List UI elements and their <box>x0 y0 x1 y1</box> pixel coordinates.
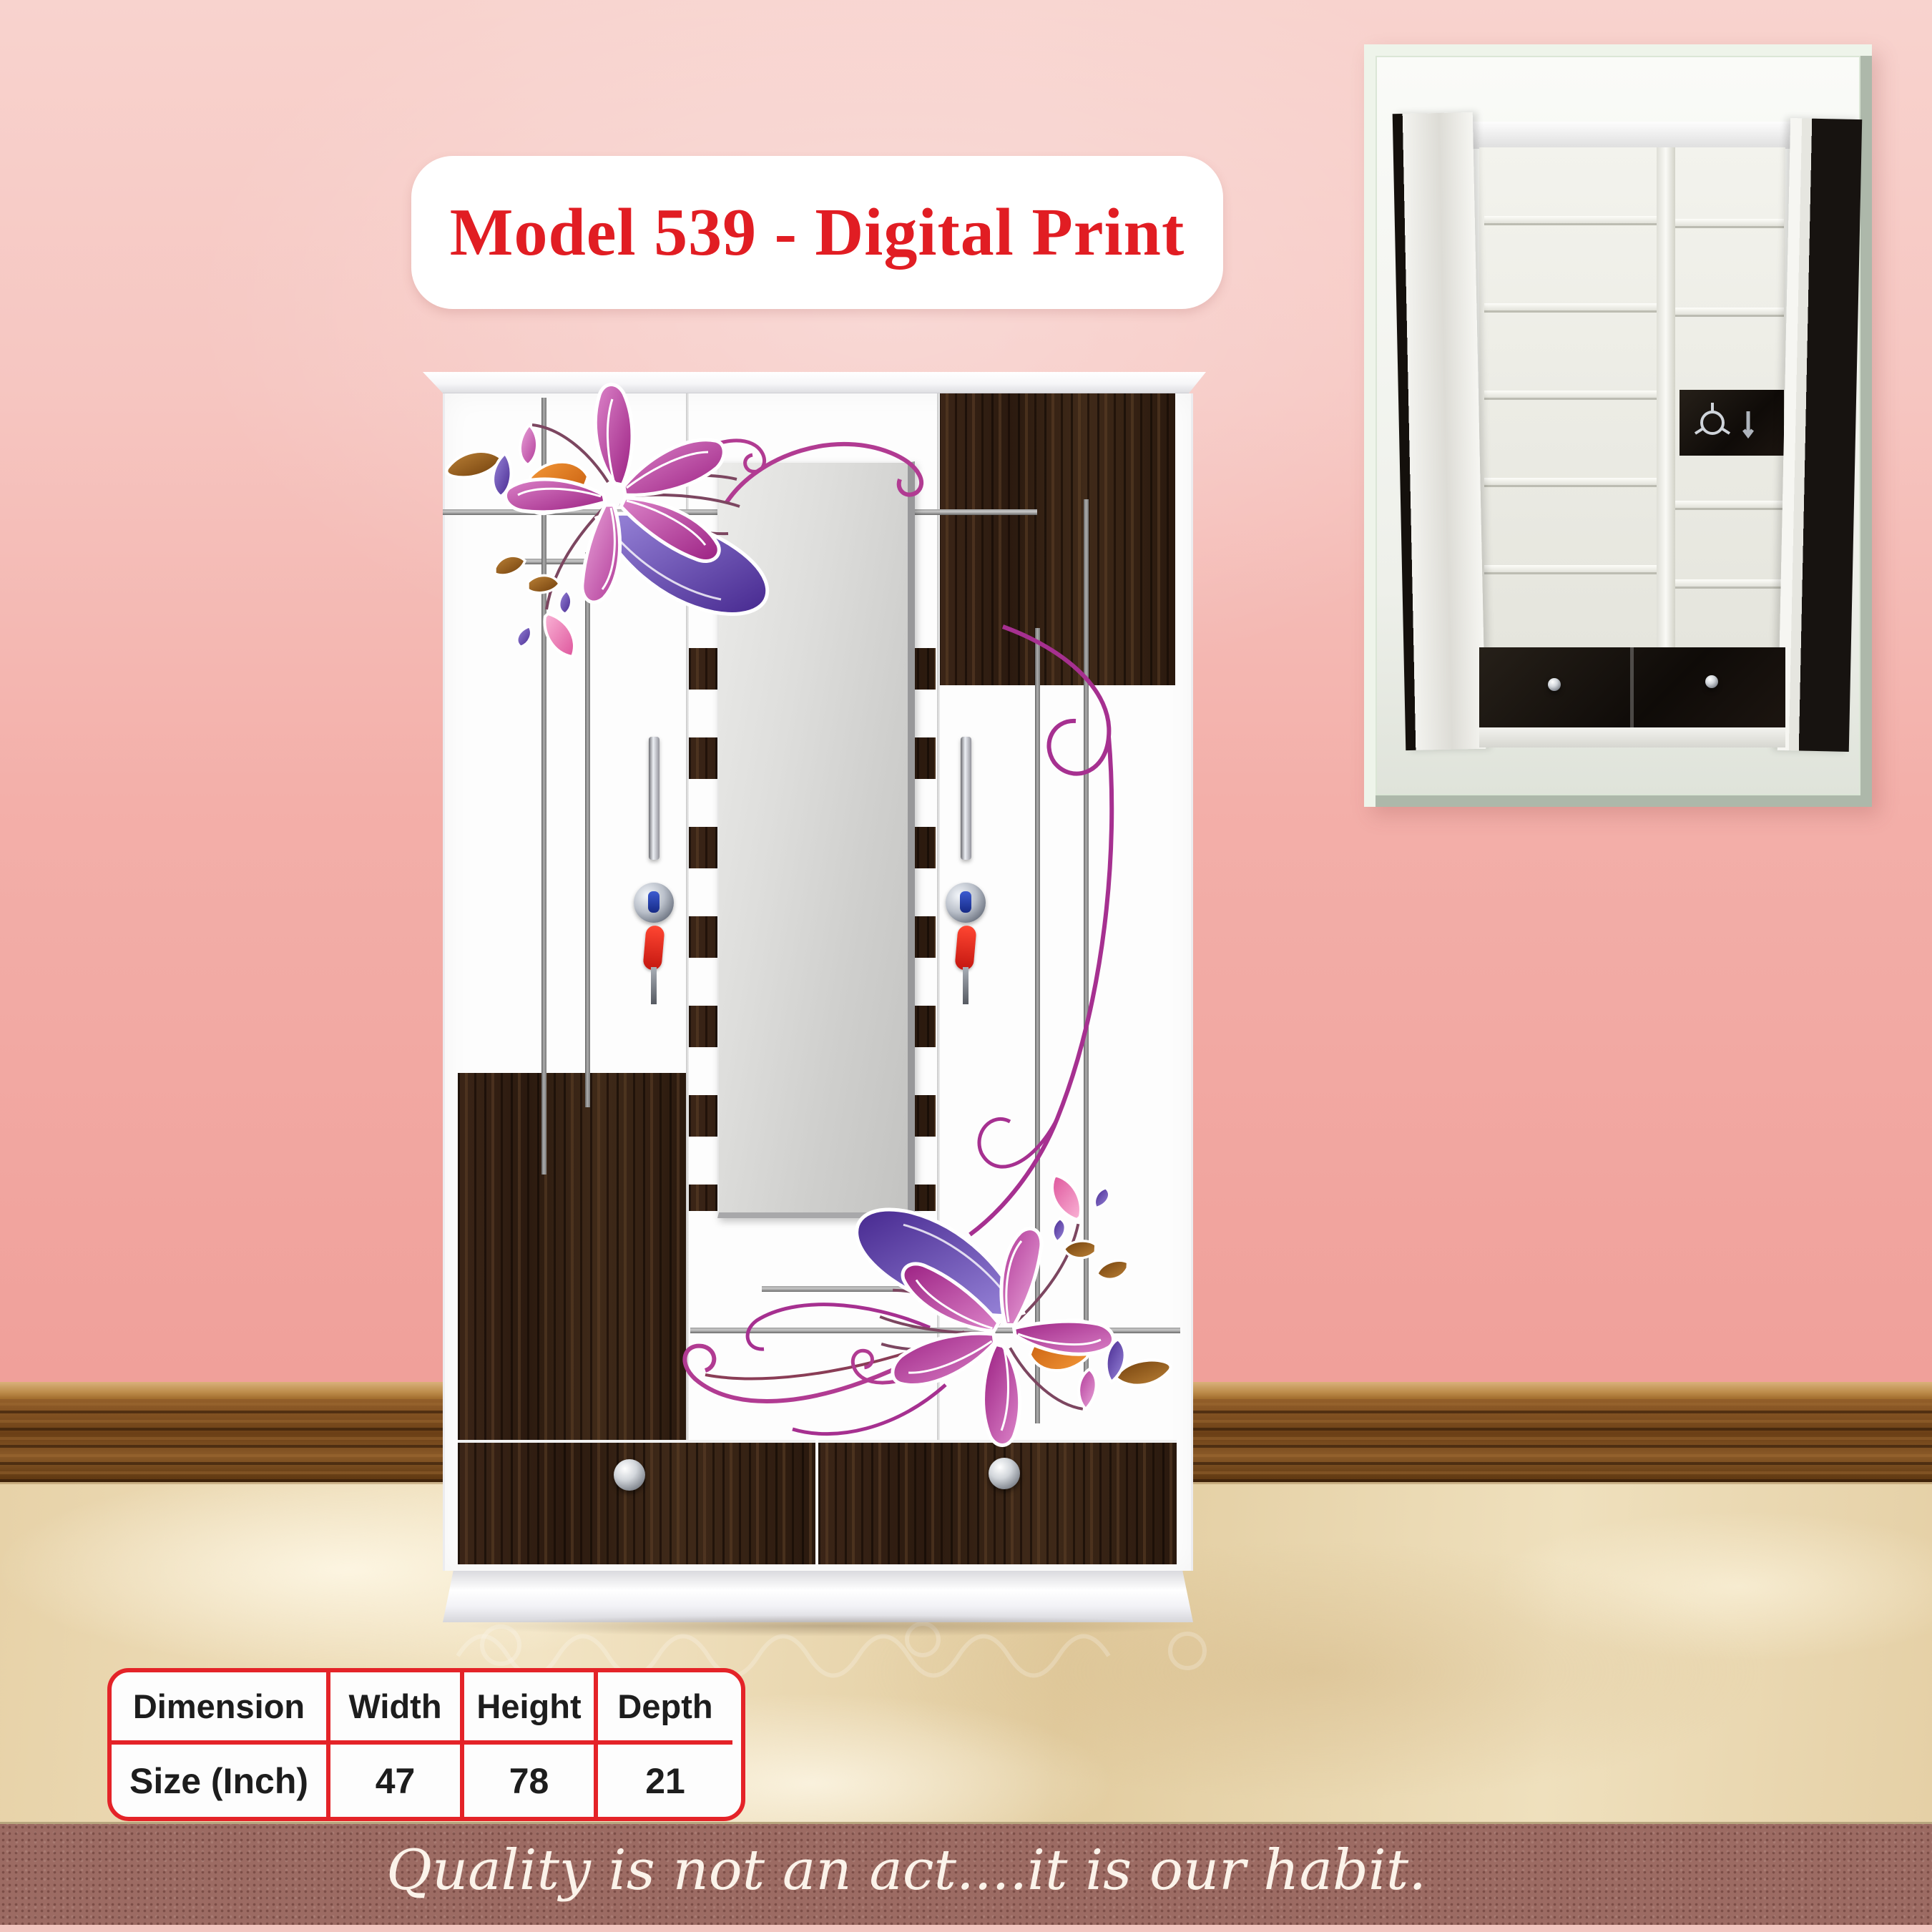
spec-row-label: Size (Inch) <box>112 1745 330 1817</box>
inset-shelf <box>1484 391 1657 400</box>
inset-open-door-right <box>1777 118 1862 752</box>
footer-bottom-strip <box>0 1925 1932 1932</box>
inset-base <box>1479 727 1785 747</box>
inset-shelf <box>1484 478 1657 487</box>
inset-drawer-knob-icon <box>1548 678 1561 691</box>
safe-key-icon <box>1744 411 1752 436</box>
flower-decal-bottom <box>846 1165 1181 1453</box>
spec-header-dimension: Dimension <box>112 1672 330 1745</box>
inset-open-door-left <box>1393 112 1486 750</box>
inset-center-post <box>1657 147 1675 647</box>
inset-cabinet-top <box>1441 122 1806 149</box>
spec-header-height: Height <box>464 1672 598 1745</box>
footer-quote: Quality is not an act....it is our habit… <box>386 1831 1245 1910</box>
inset-shelf <box>1675 219 1784 228</box>
inset-shelf <box>1675 308 1784 317</box>
spec-value-width: 47 <box>330 1745 464 1817</box>
inset-drawer-knob-icon <box>1705 675 1718 688</box>
spec-header-depth: Depth <box>598 1672 732 1745</box>
poster-canvas: Model 539 - Digital Print <box>0 0 1932 1932</box>
inset-drawer-row <box>1479 647 1785 727</box>
spec-value-height: 78 <box>464 1745 598 1817</box>
inset-shelf <box>1484 303 1657 313</box>
inset-safe <box>1680 390 1784 456</box>
spec-table: Dimension Width Height Depth Size (Inch)… <box>107 1668 745 1821</box>
safe-handle-icon <box>1680 390 1784 456</box>
inset-shelf <box>1484 565 1657 574</box>
spec-value-depth: 21 <box>598 1745 732 1817</box>
inset-shelf <box>1484 216 1657 225</box>
flower-decal-top <box>446 384 767 657</box>
spec-header-width: Width <box>330 1672 464 1745</box>
inset-shelf <box>1675 501 1784 510</box>
inset-shelf <box>1675 579 1784 589</box>
